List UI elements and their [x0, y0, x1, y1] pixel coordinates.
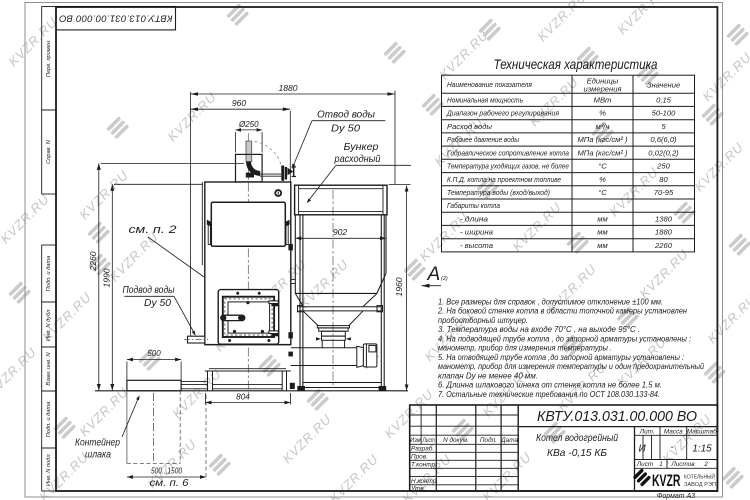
svg-text:мм: мм	[597, 214, 608, 223]
svg-text:902: 902	[333, 227, 348, 237]
svg-text:шлака: шлака	[85, 449, 111, 461]
svg-text:- ширина: - ширина	[460, 228, 493, 237]
svg-text:Котел водогрейный: Котел водогрейный	[536, 432, 618, 444]
svg-text:%: %	[599, 109, 606, 118]
svg-text:Инв. N дубл.: Инв. N дубл.	[46, 308, 52, 341]
svg-text:70-95: 70-95	[654, 188, 674, 197]
svg-text:КОТЕЛЬНЫЙ: КОТЕЛЬНЫЙ	[684, 473, 715, 481]
svg-text:Значение: Значение	[647, 81, 680, 90]
svg-text:804: 804	[236, 393, 250, 402]
svg-text:2260: 2260	[88, 251, 98, 271]
svg-text:Температура уходящих газов, не: Температура уходящих газов, не более	[447, 162, 569, 171]
svg-text:Гидравлическое сопротивление к: Гидравлическое сопротивление котла	[447, 148, 569, 157]
svg-text:МПа (кгс/см² ): МПа (кгс/см² )	[577, 135, 627, 144]
svg-text:°С: °С	[598, 162, 607, 171]
svg-text:Дата: Дата	[500, 437, 518, 444]
svg-text:1380: 1380	[655, 214, 673, 223]
svg-text:расходный: расходный	[334, 153, 381, 165]
svg-text:- длина: - длина	[460, 214, 488, 223]
svg-text:Наименование показателя: Наименование показателя	[447, 80, 532, 89]
svg-text:Контейнер: Контейнер	[75, 437, 120, 449]
svg-text:Габариты котла: Габариты котла	[447, 201, 500, 210]
svg-text:Разраб.: Разраб.	[411, 445, 434, 453]
svg-text:манометр, прибор для измерени: манометр, прибор для измерения температу…	[438, 344, 612, 353]
svg-text:КВТУ.013.031.00.000 ВО: КВТУ.013.031.00.000 ВО	[58, 13, 172, 24]
svg-text:Рабочее давление воды: Рабочее давление воды	[447, 135, 519, 144]
svg-text:Формат А3: Формат А3	[657, 493, 695, 500]
svg-text:измерения: измерения	[583, 85, 621, 94]
svg-text:2. На боковой стенке котла в: 2. На боковой стенке котла в области топ…	[437, 307, 687, 316]
svg-text:Перв. примен.: Перв. примен.	[46, 39, 52, 77]
svg-text:Подп.: Подп.	[480, 436, 497, 444]
svg-text:Лист: Лист	[422, 437, 436, 444]
svg-text:Пров.: Пров.	[411, 454, 428, 461]
svg-text:°С: °С	[598, 188, 607, 197]
svg-text:1: 1	[659, 461, 663, 468]
svg-text:ЗАВОД РЭП: ЗАВОД РЭП	[684, 482, 716, 488]
svg-text:1880: 1880	[278, 83, 297, 93]
svg-text:3. Температура воды на входе: 3. Температура воды на входе 70°С , на в…	[438, 325, 640, 334]
svg-text:Взам. инв. N: Взам. инв. N	[46, 352, 52, 386]
svg-text:Dу 50: Dу 50	[331, 123, 360, 135]
svg-text:Лит.: Лит.	[639, 429, 655, 436]
svg-text:А: А	[427, 264, 441, 285]
svg-text:Т.контр.: Т.контр.	[411, 462, 437, 469]
svg-text:4. На подводящей трубе котла: 4. На подводящей трубе котла , до запорн…	[438, 334, 691, 343]
svg-text:манометр, прибор для измерени: манометр, прибор для измерения температу…	[438, 362, 704, 371]
svg-text:КВТУ.013.031.00.000 ВО: КВТУ.013.031.00.000 ВО	[537, 408, 697, 425]
svg-text:1960: 1960	[394, 277, 404, 296]
svg-text:960: 960	[232, 98, 247, 108]
svg-text:7. Остальные технические треб: 7. Остальные технические требования по О…	[438, 390, 660, 399]
svg-text:мм: мм	[597, 228, 608, 237]
svg-text:Утв.: Утв.	[410, 485, 426, 492]
svg-text:см. п. 2: см. п. 2	[129, 224, 177, 236]
svg-text:МПа (кгс/см² ): МПа (кгс/см² )	[577, 148, 627, 157]
svg-text:мм: мм	[597, 241, 608, 250]
svg-text:Справ. N: Справ. N	[46, 139, 52, 164]
svg-text:2260: 2260	[654, 241, 673, 250]
svg-text:Листов: Листов	[670, 461, 695, 468]
svg-text:МВт: МВт	[594, 95, 612, 104]
svg-text:Диапазон рабочего регулировани: Диапазон рабочего регулирования	[446, 109, 559, 118]
svg-text:И: И	[639, 444, 647, 455]
svg-text:500: 500	[147, 349, 161, 358]
svg-text:Масштаб: Масштаб	[687, 428, 717, 436]
svg-text:1880: 1880	[655, 228, 673, 237]
svg-text:Техническая характеристика: Техническая характеристика	[494, 56, 658, 72]
svg-text:Номинальная мощность: Номинальная мощность	[447, 95, 523, 104]
svg-text:0,6(6,0): 0,6(6,0)	[650, 135, 677, 144]
svg-text:(2): (2)	[441, 276, 448, 282]
svg-text:Подп. и дата: Подп. и дата	[46, 402, 52, 438]
svg-text:80: 80	[659, 175, 668, 184]
svg-text:пробоотборный штуцер.: пробоотборный штуцер.	[438, 316, 528, 325]
svg-text:0,02(0,2): 0,02(0,2)	[648, 148, 679, 157]
svg-text:клапан Dу не менее 40 мм.: клапан Dу не менее 40 мм.	[438, 371, 538, 380]
svg-text:м³/ч: м³/ч	[596, 122, 610, 131]
svg-text:500...1500: 500...1500	[151, 467, 182, 476]
svg-text:Ø250: Ø250	[238, 120, 259, 129]
svg-text:5. На отводящей трубе котла ,: 5. На отводящей трубе котла ,до запорной…	[438, 353, 684, 362]
svg-text:Лист: Лист	[636, 461, 654, 468]
svg-text:Бункер: Бункер	[344, 141, 379, 153]
svg-text:50-100: 50-100	[652, 109, 676, 118]
svg-text:К.П.Д. котла на проектном топл: К.П.Д. котла на проектном топливе	[447, 175, 561, 184]
svg-text:см. п. 6: см. п. 6	[150, 477, 189, 489]
svg-text:Температура воды (вход/выход): Температура воды (вход/выход)	[447, 188, 550, 197]
svg-text:Отвод воды: Отвод воды	[317, 109, 375, 121]
svg-text:6. Длинна шлакового шнека от: 6. Длинна шлакового шнека от стенке котл…	[438, 381, 662, 390]
svg-text:Н.контр.: Н.контр.	[411, 478, 438, 485]
svg-text:250: 250	[656, 162, 670, 171]
svg-text:%: %	[599, 175, 606, 184]
svg-text:КВа -0,15 КБ: КВа -0,15 КБ	[547, 447, 607, 459]
svg-text:1:15: 1:15	[692, 444, 712, 455]
svg-text:Инв. N подл.: Инв. N подл.	[46, 453, 52, 486]
svg-text:N докум.: N докум.	[443, 436, 469, 444]
svg-text:Dу 50: Dу 50	[144, 297, 171, 309]
svg-text:Масса: Масса	[664, 429, 683, 436]
svg-text:KVZR: KVZR	[652, 471, 681, 490]
svg-text:Подвод воды: Подвод воды	[123, 284, 175, 296]
svg-text:Изм: Изм	[410, 437, 421, 444]
svg-text:Расход воды: Расход воды	[447, 122, 492, 131]
svg-text:2: 2	[703, 461, 708, 468]
svg-text:- высота: - высота	[460, 241, 493, 250]
svg-text:1990: 1990	[102, 268, 112, 287]
svg-text:0,15: 0,15	[656, 95, 672, 104]
svg-text:Подп. и дата: Подп. и дата	[46, 256, 52, 292]
svg-text:1. Все размеры для справок ,: 1. Все размеры для справок , допустимое …	[438, 297, 663, 306]
